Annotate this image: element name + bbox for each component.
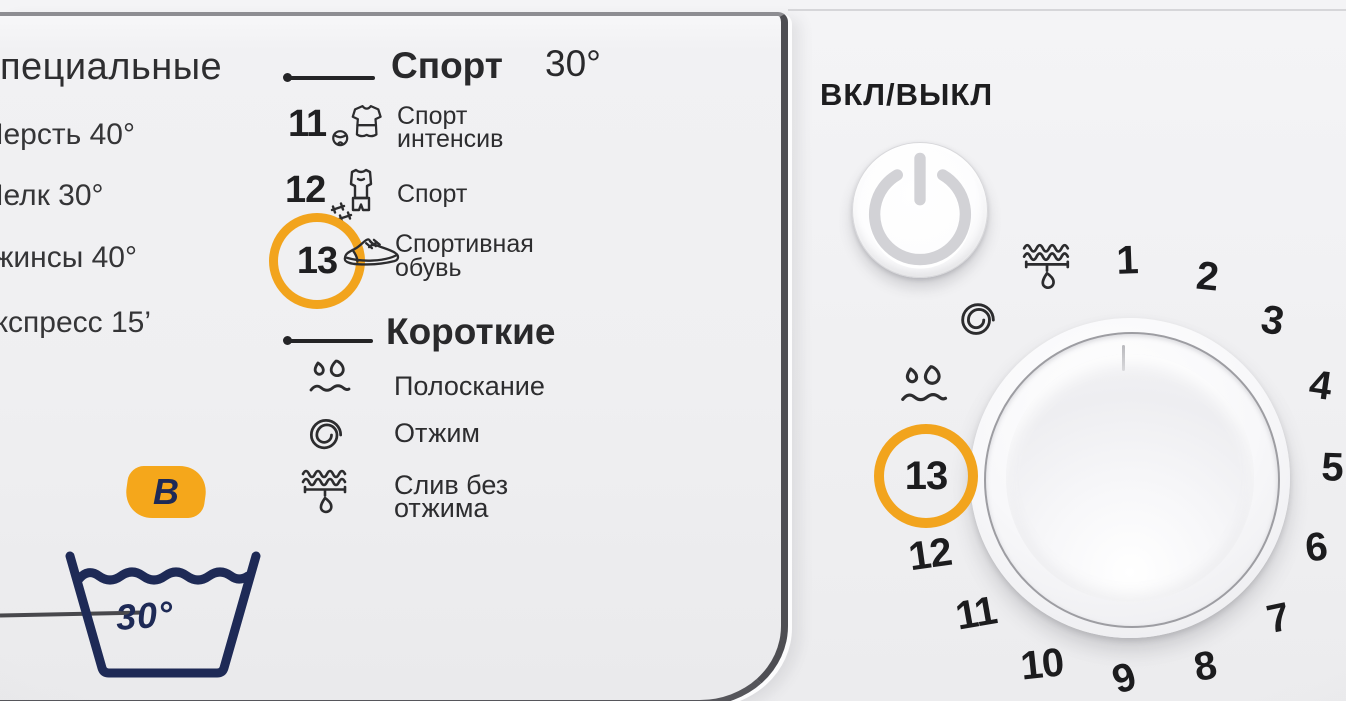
program-number-13: 13 — [297, 240, 337, 283]
dial-spin-icon — [955, 296, 1001, 349]
short-section-line — [287, 339, 373, 343]
dial-rinse-icon — [896, 362, 950, 417]
drain-label-line2: отжима — [394, 496, 488, 520]
spin-icon — [304, 412, 348, 458]
power-label: ВКЛ/ВЫКЛ — [820, 77, 993, 113]
dial-number-2: 2 — [1194, 254, 1220, 301]
sport-section-temp: 30° — [545, 43, 601, 85]
highlight-ring-dial-13: 13 — [874, 424, 978, 528]
rinse-icon — [305, 357, 353, 401]
sport-icon — [326, 164, 384, 224]
spin-label: Отжим — [394, 421, 480, 445]
panel-top-seam — [788, 9, 1346, 11]
care-badge-letter: В — [153, 471, 179, 513]
dial-number-10: 10 — [1019, 640, 1066, 689]
program-label-13-line2: обувь — [395, 256, 461, 280]
dial-drain-icon — [1019, 240, 1075, 299]
sport-section-line — [287, 76, 375, 80]
program-label-11-line2: интенсив — [397, 127, 503, 151]
short-section-title: Короткие — [386, 311, 555, 353]
program-jeans: Джинсы 40° — [0, 241, 137, 275]
program-number-12: 12 — [285, 169, 325, 212]
drain-icon — [299, 466, 351, 518]
dial-number-12: 12 — [906, 530, 954, 580]
dial-number-1: 1 — [1116, 238, 1139, 284]
dial-number-5: 5 — [1321, 445, 1344, 491]
specials-heading: Специальные — [0, 46, 222, 89]
sneakers-icon — [340, 228, 402, 274]
sport-intensive-icon — [330, 100, 382, 154]
dial-number-9: 9 — [1107, 654, 1141, 701]
dial-number-13: 13 — [905, 454, 948, 499]
dial-number-8: 8 — [1191, 643, 1220, 691]
dial-number-4: 4 — [1306, 362, 1333, 410]
dial-knob-dome — [1006, 354, 1254, 602]
rinse-label: Полоскание — [394, 374, 545, 398]
power-icon — [854, 144, 986, 276]
dial-number-6: 6 — [1303, 525, 1329, 572]
care-badge: В — [122, 466, 209, 518]
sport-section-title: Спорт — [391, 45, 503, 87]
program-express: Экспресс 15’ — [0, 306, 151, 340]
program-dial-knob[interactable] — [970, 318, 1290, 638]
program-silk: Шелк 30° — [0, 179, 104, 213]
power-button[interactable] — [852, 142, 988, 278]
program-number-11: 11 — [288, 103, 326, 146]
dial-number-3: 3 — [1258, 297, 1287, 345]
care-temperature: 30° — [115, 593, 175, 639]
program-label-12: Спорт — [397, 182, 467, 206]
program-wool: Шерсть 40° — [0, 118, 135, 152]
program-label-13-line1: Спортивная — [395, 232, 534, 256]
dial-pointer-notch — [1122, 345, 1125, 371]
washing-machine-control-panel-photo: Специальные Шерсть 40° Шелк 30° Джинсы 4… — [0, 0, 1346, 701]
dial-number-11: 11 — [952, 588, 999, 639]
dial-number-7: 7 — [1263, 595, 1293, 643]
